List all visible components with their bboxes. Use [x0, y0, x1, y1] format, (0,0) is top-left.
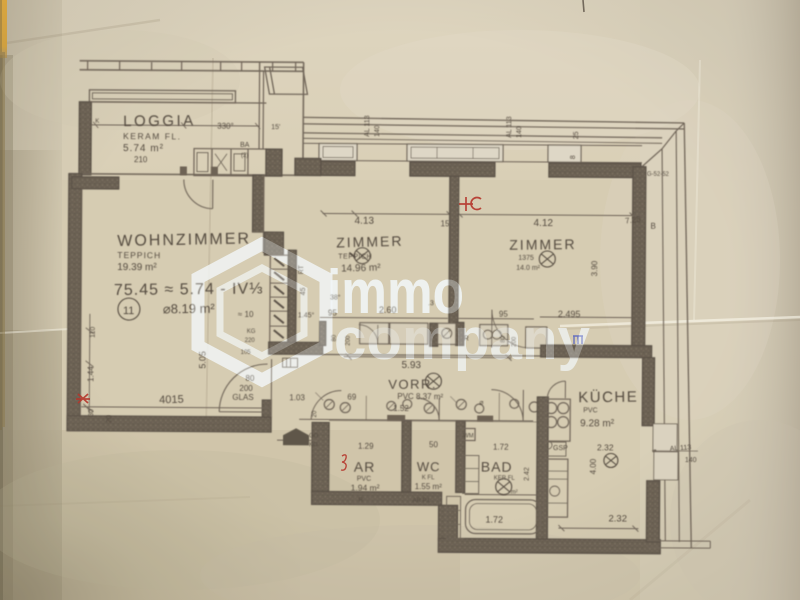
svg-text:1.72: 1.72 [493, 443, 509, 452]
svg-text:BAD: BAD [481, 459, 513, 475]
svg-text:220: 220 [245, 338, 256, 344]
svg-text:20: 20 [312, 410, 318, 417]
svg-text:110: 110 [90, 327, 97, 338]
svg-text:1375: 1375 [518, 255, 534, 262]
svg-text:30: 30 [88, 409, 95, 417]
svg-text:PVC 8.37 m²: PVC 8.37 m² [397, 392, 443, 401]
svg-text:LOGGIA: LOGGIA [123, 112, 196, 130]
svg-text:GO: GO [309, 433, 319, 439]
svg-text:1.52: 1.52 [393, 404, 409, 413]
svg-text:2.32: 2.32 [597, 442, 614, 452]
svg-text:75.45 ≈ 5.74 ‐ IV⅓: 75.45 ≈ 5.74 ‐ IV⅓ [114, 280, 264, 299]
svg-text:1.94 m²: 1.94 m² [351, 483, 380, 493]
svg-text:K FL: K FL [422, 475, 435, 481]
svg-text:4015: 4015 [159, 394, 184, 407]
svg-text:⌀: ⌀ [479, 400, 483, 407]
svg-text:≈ 10: ≈ 10 [238, 310, 254, 319]
svg-text:200: 200 [239, 384, 253, 393]
svg-text:G-52-52: G-52-52 [647, 172, 670, 178]
svg-text:TEPPICH: TEPPICH [117, 250, 161, 260]
svg-text:4.13: 4.13 [355, 216, 375, 227]
svg-text:140: 140 [516, 126, 523, 138]
svg-text:1.72: 1.72 [485, 515, 503, 525]
svg-text:8: 8 [570, 155, 577, 159]
svg-text:KG: KG [247, 329, 256, 335]
svg-text:AL 113: AL 113 [364, 115, 371, 137]
svg-text:KÜCHE: KÜCHE [578, 388, 638, 407]
svg-text:15': 15' [271, 124, 280, 131]
svg-text:2.42: 2.42 [524, 467, 531, 481]
svg-text:PVC: PVC [583, 407, 597, 414]
svg-text:50: 50 [429, 440, 439, 449]
svg-text:140: 140 [374, 125, 381, 137]
svg-text:9.28 m²: 9.28 m² [580, 418, 615, 429]
svg-text:140: 140 [685, 457, 697, 464]
svg-text:WM: WM [463, 433, 474, 439]
svg-text:GLAS: GLAS [232, 393, 253, 402]
svg-text:B: B [650, 222, 655, 231]
svg-text:ZIMMER: ZIMMER [509, 236, 576, 253]
svg-text:2.32: 2.32 [608, 513, 627, 524]
svg-text:(2): (2) [241, 153, 248, 159]
svg-text:330°: 330° [217, 122, 234, 131]
svg-text:ZIMMER: ZIMMER [336, 233, 404, 251]
svg-text:210: 210 [134, 155, 148, 164]
svg-text:GSP: GSP [553, 445, 568, 452]
svg-text:company: company [334, 307, 590, 372]
svg-text:BA: BA [240, 142, 250, 149]
svg-text:19.39 m²: 19.39 m² [117, 262, 157, 273]
svg-text:WC: WC [417, 459, 441, 474]
svg-text:AL 113: AL 113 [506, 116, 513, 138]
svg-text:KERAM FL.: KERAM FL. [123, 131, 181, 141]
svg-text:69: 69 [347, 393, 357, 402]
svg-text:K: K [95, 119, 99, 125]
svg-text:25: 25 [573, 131, 580, 139]
svg-text:KO: KO [309, 442, 318, 448]
svg-text:20: 20 [106, 415, 113, 423]
svg-text:1.44: 1.44 [86, 366, 95, 382]
svg-text:1.03: 1.03 [289, 393, 305, 402]
svg-text:5.74 m²: 5.74 m² [123, 143, 164, 154]
svg-text:R: R [359, 498, 364, 504]
svg-text:AR: AR [354, 459, 376, 475]
svg-text:WOHNZIMMER: WOHNZIMMER [117, 230, 251, 250]
svg-text:1.29: 1.29 [358, 442, 374, 451]
svg-text:1.55 m²: 1.55 m² [415, 482, 443, 491]
svg-text:15: 15 [441, 219, 451, 228]
svg-text:AR P.L: AR P.L [413, 498, 432, 504]
svg-text:⌀8.19 m²: ⌀8.19 m² [163, 301, 216, 317]
svg-text:3.90: 3.90 [590, 260, 599, 276]
svg-text:11: 11 [123, 305, 135, 317]
svg-text:m²: m² [511, 490, 518, 496]
svg-text:14.0 m²: 14.0 m² [516, 265, 540, 272]
svg-text:4.00: 4.00 [589, 458, 598, 474]
svg-text:4.12: 4.12 [533, 218, 553, 229]
